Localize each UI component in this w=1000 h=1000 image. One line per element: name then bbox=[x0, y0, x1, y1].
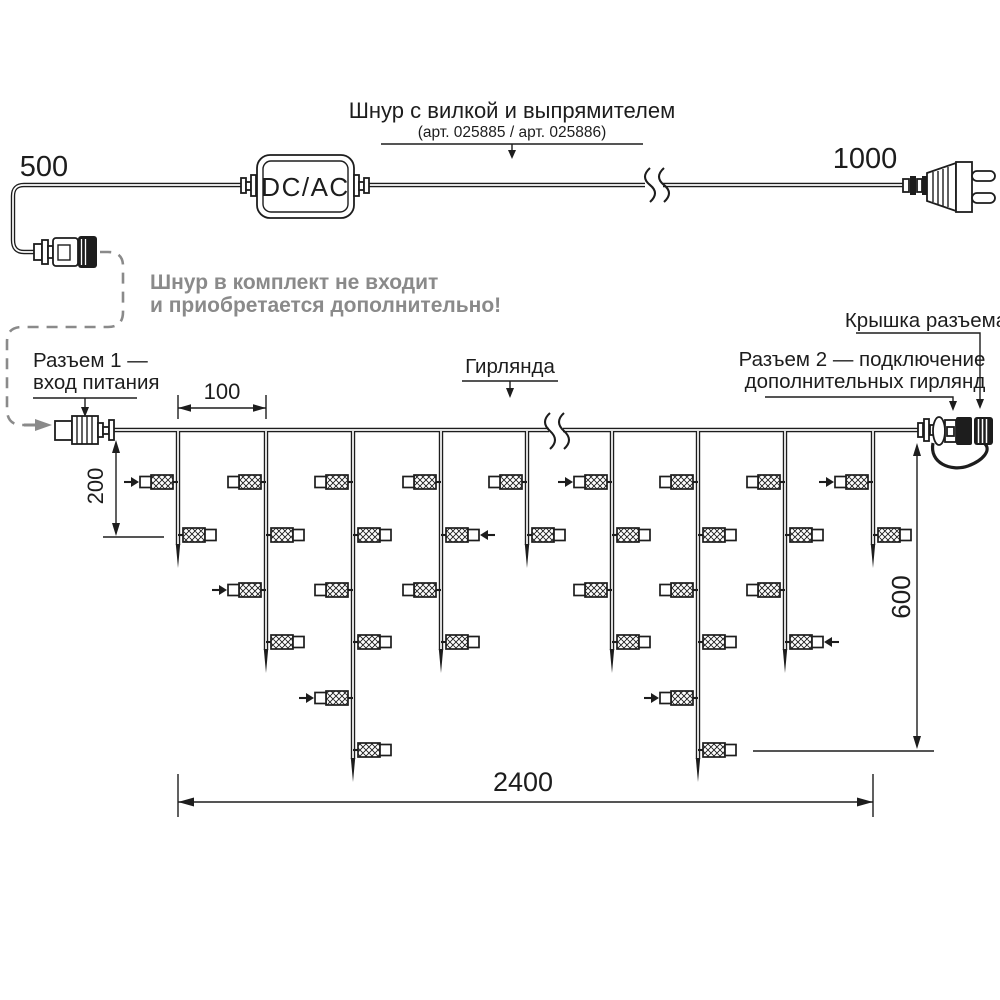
adapter-right-terminal-icon bbox=[354, 175, 369, 196]
dim-1000-label: 1000 bbox=[833, 143, 898, 175]
cap-label: Крышка разъема bbox=[845, 309, 1000, 332]
led-lamp-cap bbox=[812, 530, 823, 541]
garland-output-connector bbox=[918, 417, 993, 468]
led-lamp-cap bbox=[489, 477, 500, 488]
led-lamp-cap bbox=[315, 477, 326, 488]
led-lamp-cap bbox=[835, 477, 846, 488]
flash-marker-icon bbox=[824, 637, 832, 647]
adapter-label: DC/AC bbox=[261, 172, 349, 202]
dim-200-label: 200 bbox=[83, 468, 108, 505]
led-lamp bbox=[414, 475, 436, 489]
led-lamp-cap bbox=[747, 585, 758, 596]
led-lamp bbox=[703, 528, 725, 542]
not-included-note: Шнур в комплект не входит и приобретаетс… bbox=[150, 271, 501, 317]
led-lamp bbox=[414, 583, 436, 597]
led-lamp bbox=[703, 743, 725, 757]
cap-tether-cable bbox=[933, 443, 988, 468]
flash-marker-icon bbox=[306, 693, 314, 703]
connector-cap bbox=[974, 417, 993, 445]
adapter-left-terminal-icon bbox=[241, 175, 256, 196]
led-lamp bbox=[758, 583, 780, 597]
dim-100: 100 bbox=[178, 379, 266, 419]
dim-600-label: 600 bbox=[886, 575, 916, 618]
callout-arrow-icon bbox=[949, 401, 957, 411]
connector2-label-line2: дополнительных гирлянд bbox=[745, 370, 986, 393]
led-lamp bbox=[617, 635, 639, 649]
dashed-arrow-icon bbox=[35, 419, 52, 431]
led-lamp-cap bbox=[380, 530, 391, 541]
dim-2400-label: 2400 bbox=[493, 767, 553, 797]
cord-callout-title: Шнур с вилкой и выпрямителем bbox=[349, 98, 676, 123]
led-lamp bbox=[758, 475, 780, 489]
cord-output-connector bbox=[34, 236, 97, 268]
dim-100-label: 100 bbox=[204, 379, 241, 404]
drop-tip bbox=[783, 649, 787, 673]
led-lamp-cap bbox=[660, 477, 671, 488]
drop-tip bbox=[439, 649, 443, 673]
led-lamp bbox=[239, 583, 261, 597]
flash-marker-icon bbox=[131, 477, 139, 487]
drop-tip bbox=[525, 544, 529, 568]
plug-prong-top bbox=[972, 171, 995, 181]
drop-tip bbox=[696, 758, 700, 782]
led-lamp-cap bbox=[574, 477, 585, 488]
led-lamp bbox=[358, 528, 380, 542]
flash-marker-icon bbox=[480, 530, 488, 540]
led-lamp bbox=[326, 691, 348, 705]
led-lamp bbox=[271, 635, 293, 649]
led-lamp bbox=[239, 475, 261, 489]
led-lamp-cap bbox=[293, 530, 304, 541]
garland-break-icon bbox=[545, 413, 569, 449]
led-lamp bbox=[790, 635, 812, 649]
connector2-label-line1: Разъем 2 — подключение bbox=[739, 348, 986, 371]
drop-tip bbox=[351, 758, 355, 782]
led-lamp bbox=[617, 528, 639, 542]
led-lamp bbox=[671, 691, 693, 705]
led-lamp-cap bbox=[725, 530, 736, 541]
cord-left-wire bbox=[13, 185, 253, 252]
led-lamp bbox=[151, 475, 173, 489]
led-lamp bbox=[703, 635, 725, 649]
plug-prong-bottom bbox=[972, 193, 995, 203]
connector1-label-line2: вход питания bbox=[33, 371, 160, 394]
led-lamp-cap bbox=[140, 477, 151, 488]
connector1-callout: Разъем 1 — вход питания bbox=[33, 349, 160, 417]
led-lamp-cap bbox=[228, 585, 239, 596]
led-lamp-cap bbox=[403, 585, 414, 596]
led-lamp bbox=[446, 635, 468, 649]
flash-marker-icon bbox=[219, 585, 227, 595]
connector2-callout: Разъем 2 — подключение дополнительных ги… bbox=[739, 348, 986, 411]
led-lamp-cap bbox=[228, 477, 239, 488]
dim-500-label: 500 bbox=[20, 151, 68, 183]
callout-arrow-icon bbox=[506, 388, 514, 398]
dashed-connection-path bbox=[7, 252, 123, 431]
garland-assembly: Разъем 1 — вход питания Гирлянда Разъем … bbox=[33, 309, 1000, 817]
led-lamp-cap bbox=[468, 637, 479, 648]
garland-label: Гирлянда bbox=[465, 355, 555, 378]
led-lamp bbox=[585, 583, 607, 597]
led-lamp-cap bbox=[403, 477, 414, 488]
garland-input-connector bbox=[55, 416, 114, 444]
led-lamp-cap bbox=[660, 693, 671, 704]
dim-2400: 2400 bbox=[178, 767, 873, 817]
flash-marker-icon bbox=[565, 477, 573, 487]
drop-tip bbox=[264, 649, 268, 673]
led-lamp-cap bbox=[639, 637, 650, 648]
led-lamp-cap bbox=[660, 585, 671, 596]
led-lamp-cap bbox=[293, 637, 304, 648]
led-lamp bbox=[271, 528, 293, 542]
note-line2: и приобретается дополнительно! bbox=[150, 294, 501, 317]
led-lamp bbox=[358, 635, 380, 649]
note-line1: Шнур в комплект не входит bbox=[150, 271, 438, 294]
led-lamp-cap bbox=[900, 530, 911, 541]
flash-marker-icon bbox=[826, 477, 834, 487]
led-lamp-cap bbox=[725, 637, 736, 648]
led-lamp-cap bbox=[380, 745, 391, 756]
led-lamp bbox=[326, 583, 348, 597]
led-lamp bbox=[790, 528, 812, 542]
led-lamp bbox=[846, 475, 868, 489]
cord-callout-articles: (арт. 025885 / арт. 025886) bbox=[418, 124, 606, 141]
drop-tip bbox=[176, 544, 180, 568]
led-lamp bbox=[358, 743, 380, 757]
led-lamp bbox=[671, 583, 693, 597]
led-lamp bbox=[585, 475, 607, 489]
led-lamp bbox=[532, 528, 554, 542]
connector2-body bbox=[956, 417, 972, 445]
connector1-label-line1: Разъем 1 — bbox=[33, 349, 148, 372]
led-lamp-cap bbox=[380, 637, 391, 648]
garland-callout: Гирлянда bbox=[462, 355, 558, 398]
led-lamp-cap bbox=[812, 637, 823, 648]
led-lamp-cap bbox=[205, 530, 216, 541]
led-lamp-cap bbox=[725, 745, 736, 756]
led-lamp bbox=[878, 528, 900, 542]
garland-schematic: DC/AC bbox=[0, 0, 1000, 1000]
led-lamp-cap bbox=[639, 530, 650, 541]
mains-plug bbox=[903, 162, 995, 212]
led-lamp-cap bbox=[574, 585, 585, 596]
drop-tip bbox=[871, 544, 875, 568]
flash-marker-icon bbox=[651, 693, 659, 703]
led-lamp-cap bbox=[468, 530, 479, 541]
led-lamp bbox=[671, 475, 693, 489]
cord-callout: Шнур с вилкой и выпрямителем (арт. 02588… bbox=[349, 98, 676, 159]
cord-break-icon bbox=[645, 168, 669, 202]
garland-drops bbox=[114, 430, 920, 782]
led-lamp-cap bbox=[315, 585, 326, 596]
led-lamp-cap bbox=[747, 477, 758, 488]
callout-arrow-icon bbox=[976, 399, 984, 409]
callout-arrow-icon bbox=[508, 150, 516, 159]
led-lamp bbox=[500, 475, 522, 489]
cord-left-wire-core bbox=[13, 185, 253, 252]
led-lamp bbox=[326, 475, 348, 489]
led-lamp bbox=[446, 528, 468, 542]
led-lamp-cap bbox=[554, 530, 565, 541]
diagram-canvas: DC/AC bbox=[0, 0, 1000, 1000]
led-lamp-cap bbox=[315, 693, 326, 704]
led-lamp bbox=[183, 528, 205, 542]
dc-ac-adapter: DC/AC bbox=[241, 155, 369, 218]
drop-tip bbox=[610, 649, 614, 673]
